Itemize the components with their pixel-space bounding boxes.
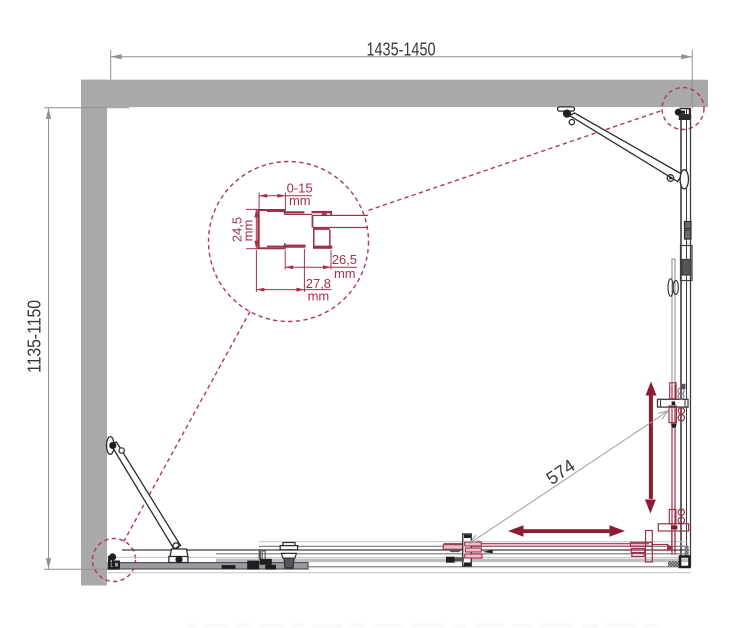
svg-text:mm: mm (334, 266, 356, 281)
svg-text:mm: mm (241, 220, 256, 242)
svg-text:mm: mm (308, 289, 330, 304)
svg-text:mm: mm (289, 193, 311, 208)
svg-text:1135-1150: 1135-1150 (24, 300, 45, 373)
svg-text:1435-1450: 1435-1450 (367, 39, 436, 60)
